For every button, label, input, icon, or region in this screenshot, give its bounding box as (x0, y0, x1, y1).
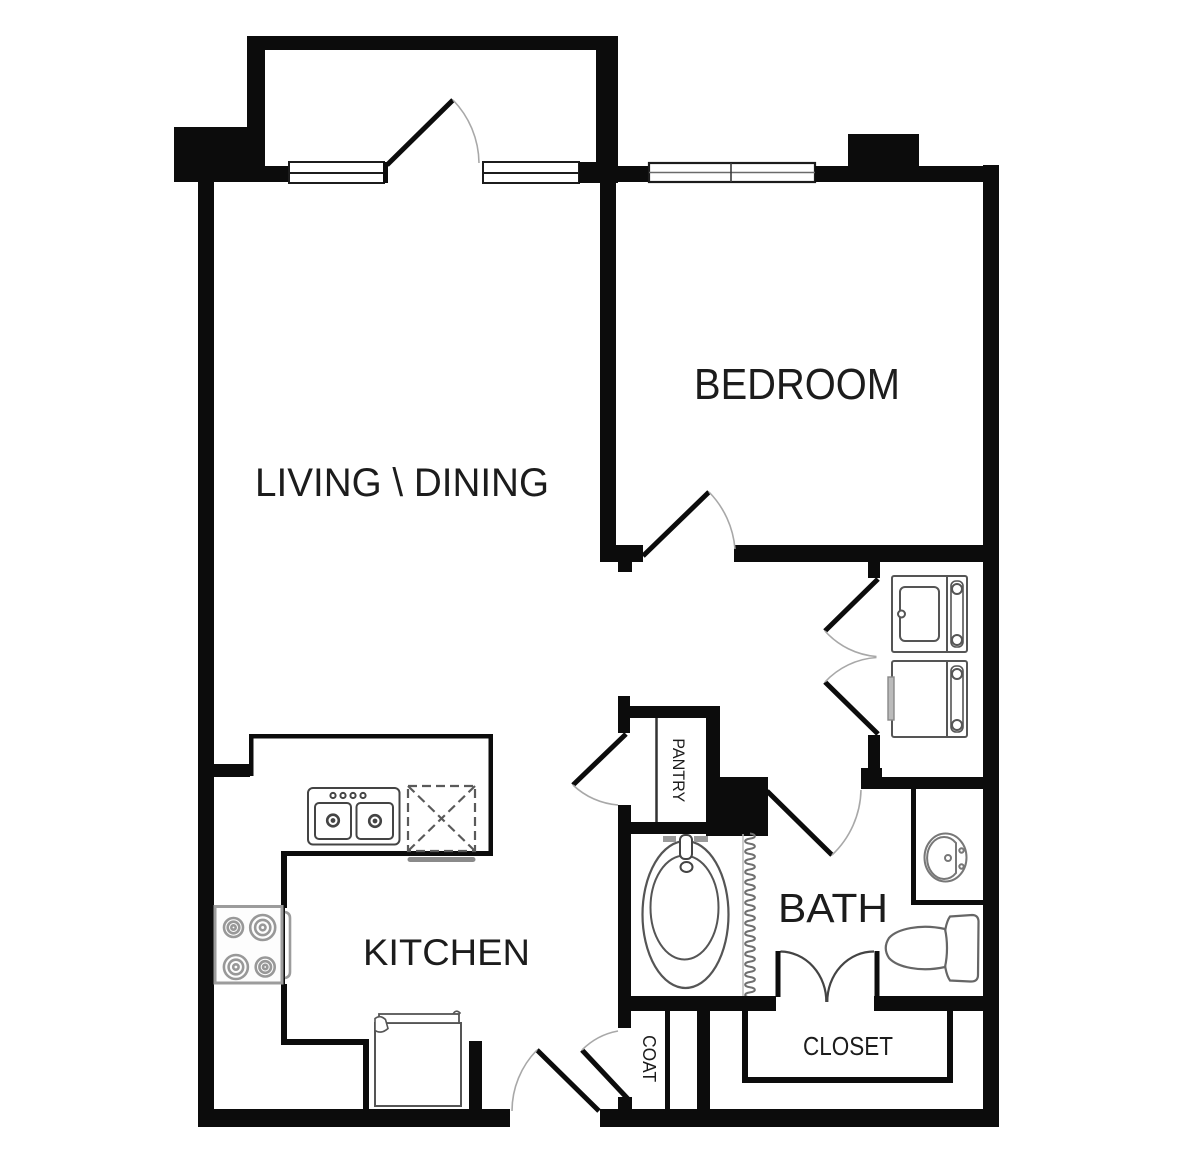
svg-text:KITCHEN: KITCHEN (363, 932, 530, 973)
svg-text:LIVING \ DINING: LIVING \ DINING (255, 461, 549, 505)
svg-text:PANTRY: PANTRY (669, 738, 688, 802)
svg-text:BATH: BATH (778, 885, 888, 931)
svg-text:BEDROOM: BEDROOM (694, 360, 900, 409)
svg-text:COAT: COAT (639, 1035, 659, 1082)
svg-text:CLOSET: CLOSET (803, 1031, 893, 1061)
